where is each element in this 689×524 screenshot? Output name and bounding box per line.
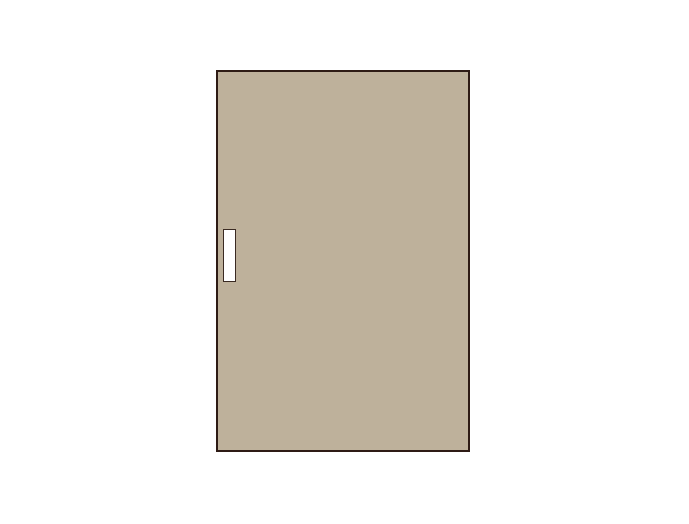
scene-canvas: [0, 0, 689, 524]
door-handle[interactable]: [223, 229, 236, 282]
door-panel[interactable]: [216, 70, 470, 452]
